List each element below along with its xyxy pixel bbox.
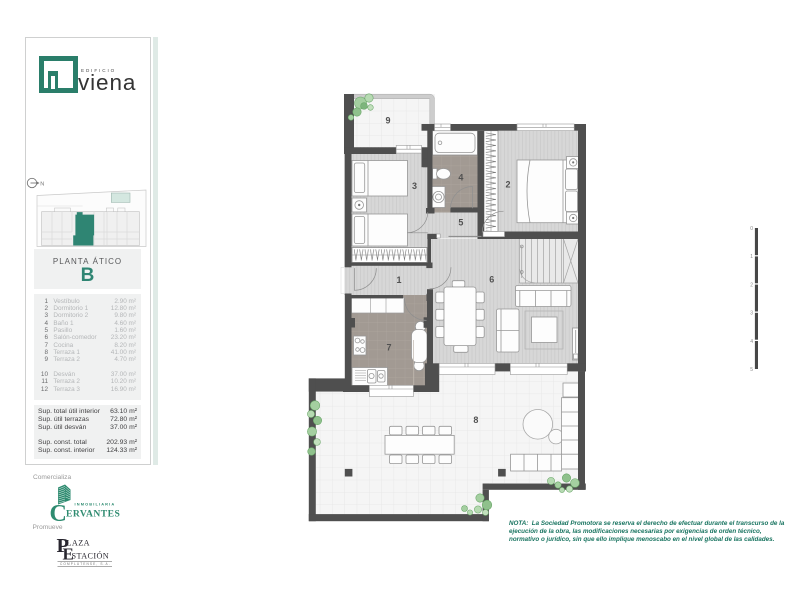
svg-text:9: 9 [385,116,390,126]
svg-text:0: 0 [750,226,753,232]
svg-text:C: C [50,501,67,525]
svg-text:INMOBILIARIA: INMOBILIARIA [75,502,116,507]
svg-text:2: 2 [505,180,510,190]
svg-text:ERVANTES: ERVANTES [66,509,120,520]
svg-text:N: N [40,181,44,187]
svg-text:7: 7 [386,343,391,353]
svg-text:1: 1 [396,275,401,285]
svg-text:8: 8 [473,415,478,425]
svg-text:COMPLUTENSE, S.A.: COMPLUTENSE, S.A. [60,562,111,566]
svg-text:5: 5 [458,217,463,227]
svg-text:5: 5 [750,367,753,373]
svg-text:STACIÓN: STACIÓN [72,551,110,561]
svg-text:3: 3 [412,181,417,191]
svg-text:1: 1 [750,254,753,260]
svg-text:4: 4 [750,339,753,345]
svg-text:3: 3 [750,311,753,317]
svg-text:4: 4 [458,172,463,182]
svg-text:2: 2 [750,282,753,288]
svg-text:6: 6 [489,275,494,285]
